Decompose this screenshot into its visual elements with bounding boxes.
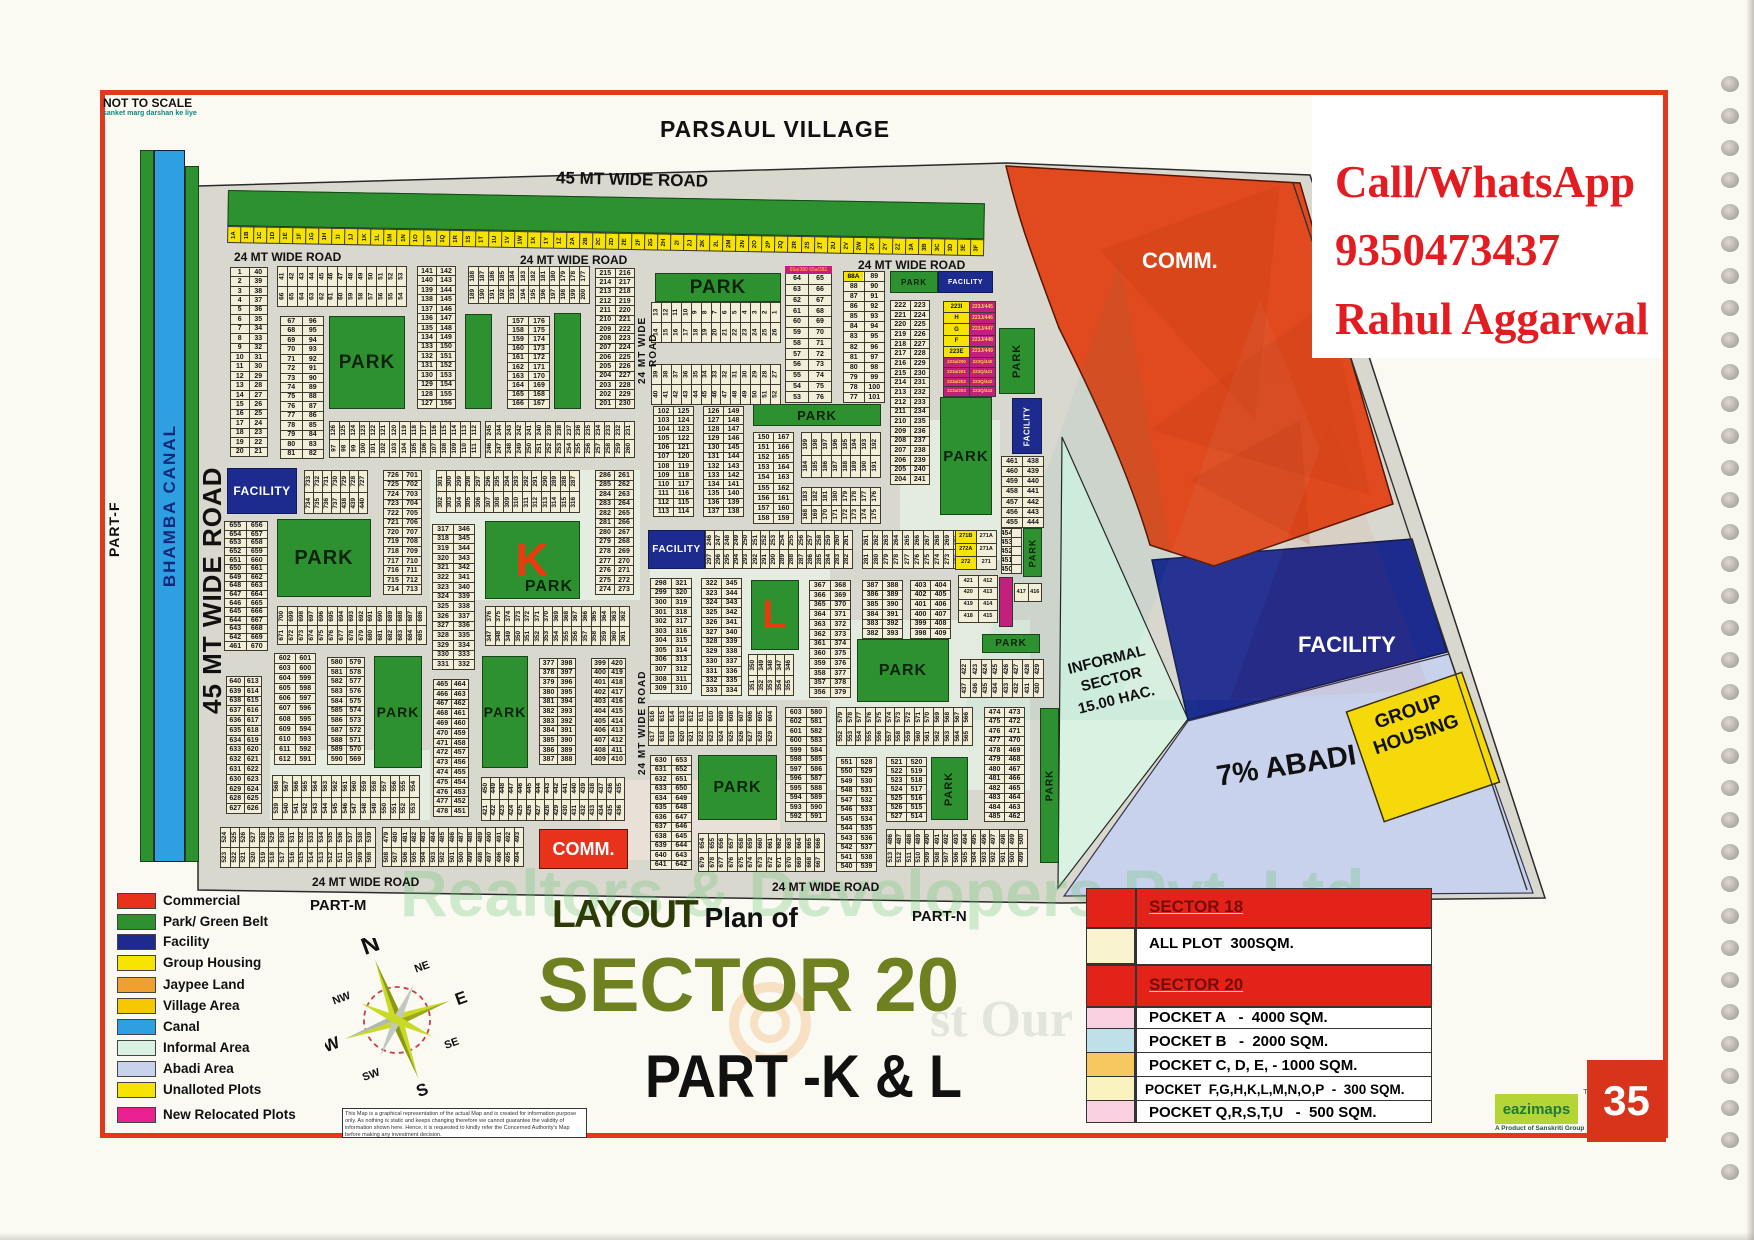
svg-text:E: E (453, 987, 470, 1009)
svg-text:W: W (325, 1032, 343, 1056)
svg-text:SW: SW (361, 1066, 382, 1084)
svg-text:NE: NE (413, 959, 431, 976)
svg-text:SE: SE (443, 1036, 461, 1052)
svg-text:N: N (358, 938, 384, 961)
svg-text:NW: NW (331, 990, 353, 1008)
svg-text:S: S (414, 1079, 431, 1101)
